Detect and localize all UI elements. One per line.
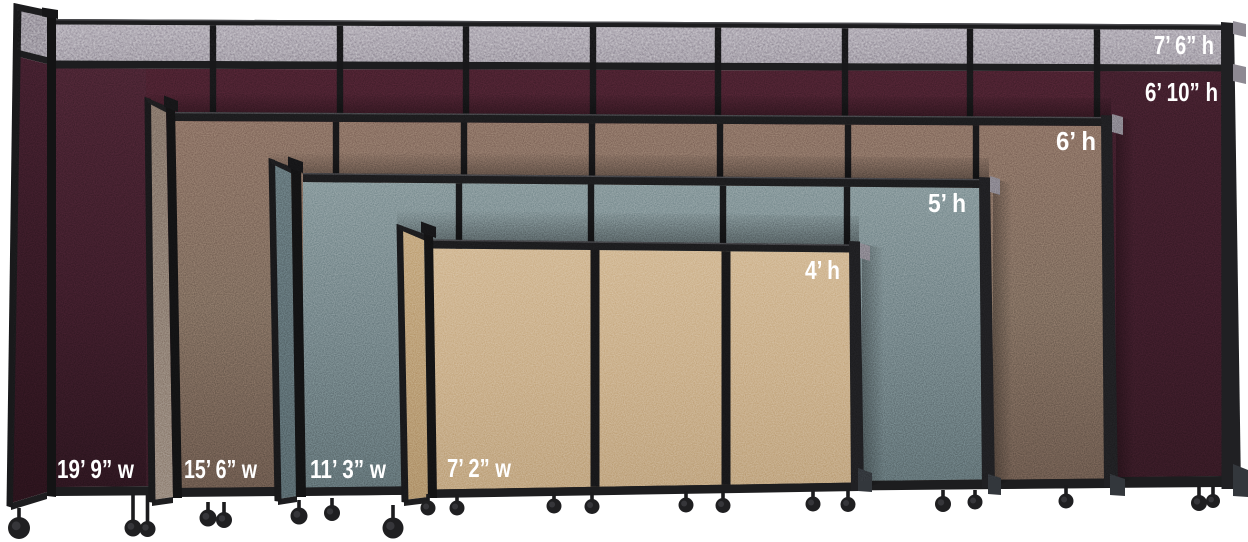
svg-text:19’ 9” w: 19’ 9” w: [57, 454, 135, 484]
svg-text:7’ 2” w: 7’ 2” w: [447, 453, 512, 483]
svg-text:11’ 3” w: 11’ 3” w: [310, 454, 387, 484]
svg-text:6’ 10” h: 6’ 10” h: [1145, 77, 1218, 107]
svg-text:7’ 6” h: 7’ 6” h: [1154, 30, 1214, 60]
svg-text:15’ 6” w: 15’ 6” w: [184, 454, 258, 484]
svg-text:5’ h: 5’ h: [928, 188, 966, 218]
svg-text:6’ h: 6’ h: [1056, 126, 1096, 156]
svg-text:4’ h: 4’ h: [805, 255, 840, 285]
